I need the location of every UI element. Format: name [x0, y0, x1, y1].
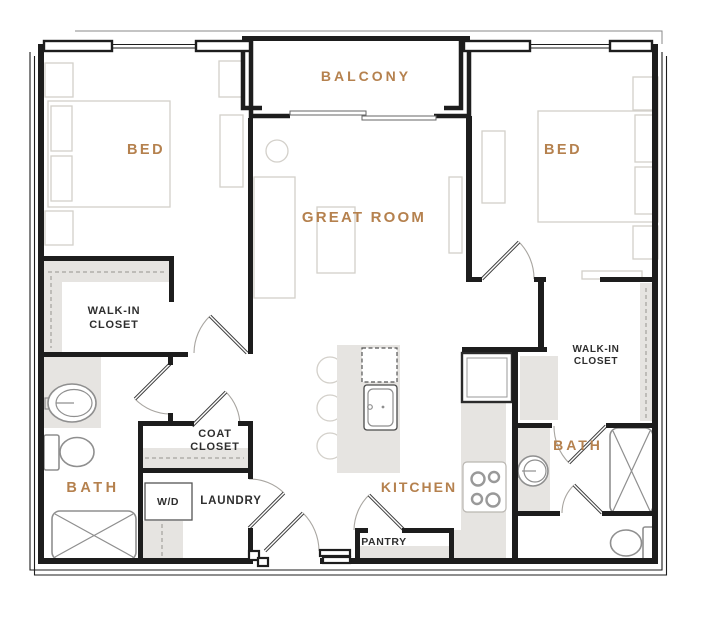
room-label-bed-left: BED [127, 142, 165, 158]
label-walk-in-closet-right-line2: CLOSET [574, 356, 618, 367]
bath-left-shower [52, 511, 136, 560]
coat-closet-door [192, 392, 240, 426]
pantry-door [354, 495, 404, 530]
side-table [266, 140, 288, 162]
room-label-kitchen: KITCHEN [381, 479, 457, 495]
bath-right-toilet [611, 527, 658, 560]
sofa [254, 177, 295, 298]
window [44, 41, 112, 51]
room-label-bath-left: BATH [66, 480, 119, 496]
sliding-door [290, 111, 366, 115]
bed-left-pillow [51, 106, 72, 151]
dresser [220, 115, 243, 187]
bed-left-pillow [51, 156, 72, 201]
bath-left-door [135, 364, 170, 414]
room-label-balcony: BALCONY [321, 68, 411, 84]
entry-threshold [323, 557, 350, 563]
entry-step [258, 558, 268, 566]
label-laundry: LAUNDRY [200, 495, 261, 507]
toilet-room-door [562, 485, 602, 513]
balcony-parapet [242, 36, 470, 41]
window [196, 41, 250, 51]
window [610, 41, 652, 51]
entry-door [265, 513, 319, 551]
nightstand [45, 211, 73, 245]
refrigerator [462, 353, 512, 402]
label-pantry: PANTRY [361, 536, 407, 548]
label-coat-closet-line2: CLOSET [190, 441, 239, 453]
chair [219, 61, 243, 97]
label-walk-in-closet-right-line1: WALK-IN [573, 344, 620, 355]
bedroom-left-door [194, 316, 247, 353]
cooktop [463, 462, 506, 512]
floor-plan-canvas: BALCONY BED BED GREAT ROOM KITCHEN BATH … [0, 0, 707, 621]
bedroom-right-door [482, 242, 534, 279]
dresser [482, 131, 505, 203]
walls [38, 36, 658, 564]
room-label-bed-right: BED [544, 142, 582, 158]
label-coat-closet-line1: COAT [198, 428, 232, 440]
label-walk-in-closet-left-line1: WALK-IN [88, 305, 141, 317]
window [464, 41, 530, 51]
label-walk-in-closet-left-line2: CLOSET [89, 319, 138, 331]
entry-threshold [320, 550, 350, 556]
kitchen-sink [364, 385, 397, 430]
bath-left-toilet [44, 435, 94, 470]
bath-right-shower [610, 428, 653, 514]
label-washer-dryer: W/D [157, 496, 179, 508]
floor-plan-page: BALCONY BED BED GREAT ROOM KITCHEN BATH … [0, 0, 707, 621]
room-label-bath-right: BATH [553, 437, 603, 453]
media-console [449, 177, 462, 253]
closet-right-shelf [520, 356, 558, 420]
room-label-great-room: GREAT ROOM [302, 209, 426, 226]
dishwasher [362, 348, 397, 382]
nightstand [45, 63, 73, 97]
sliding-door [362, 116, 436, 120]
